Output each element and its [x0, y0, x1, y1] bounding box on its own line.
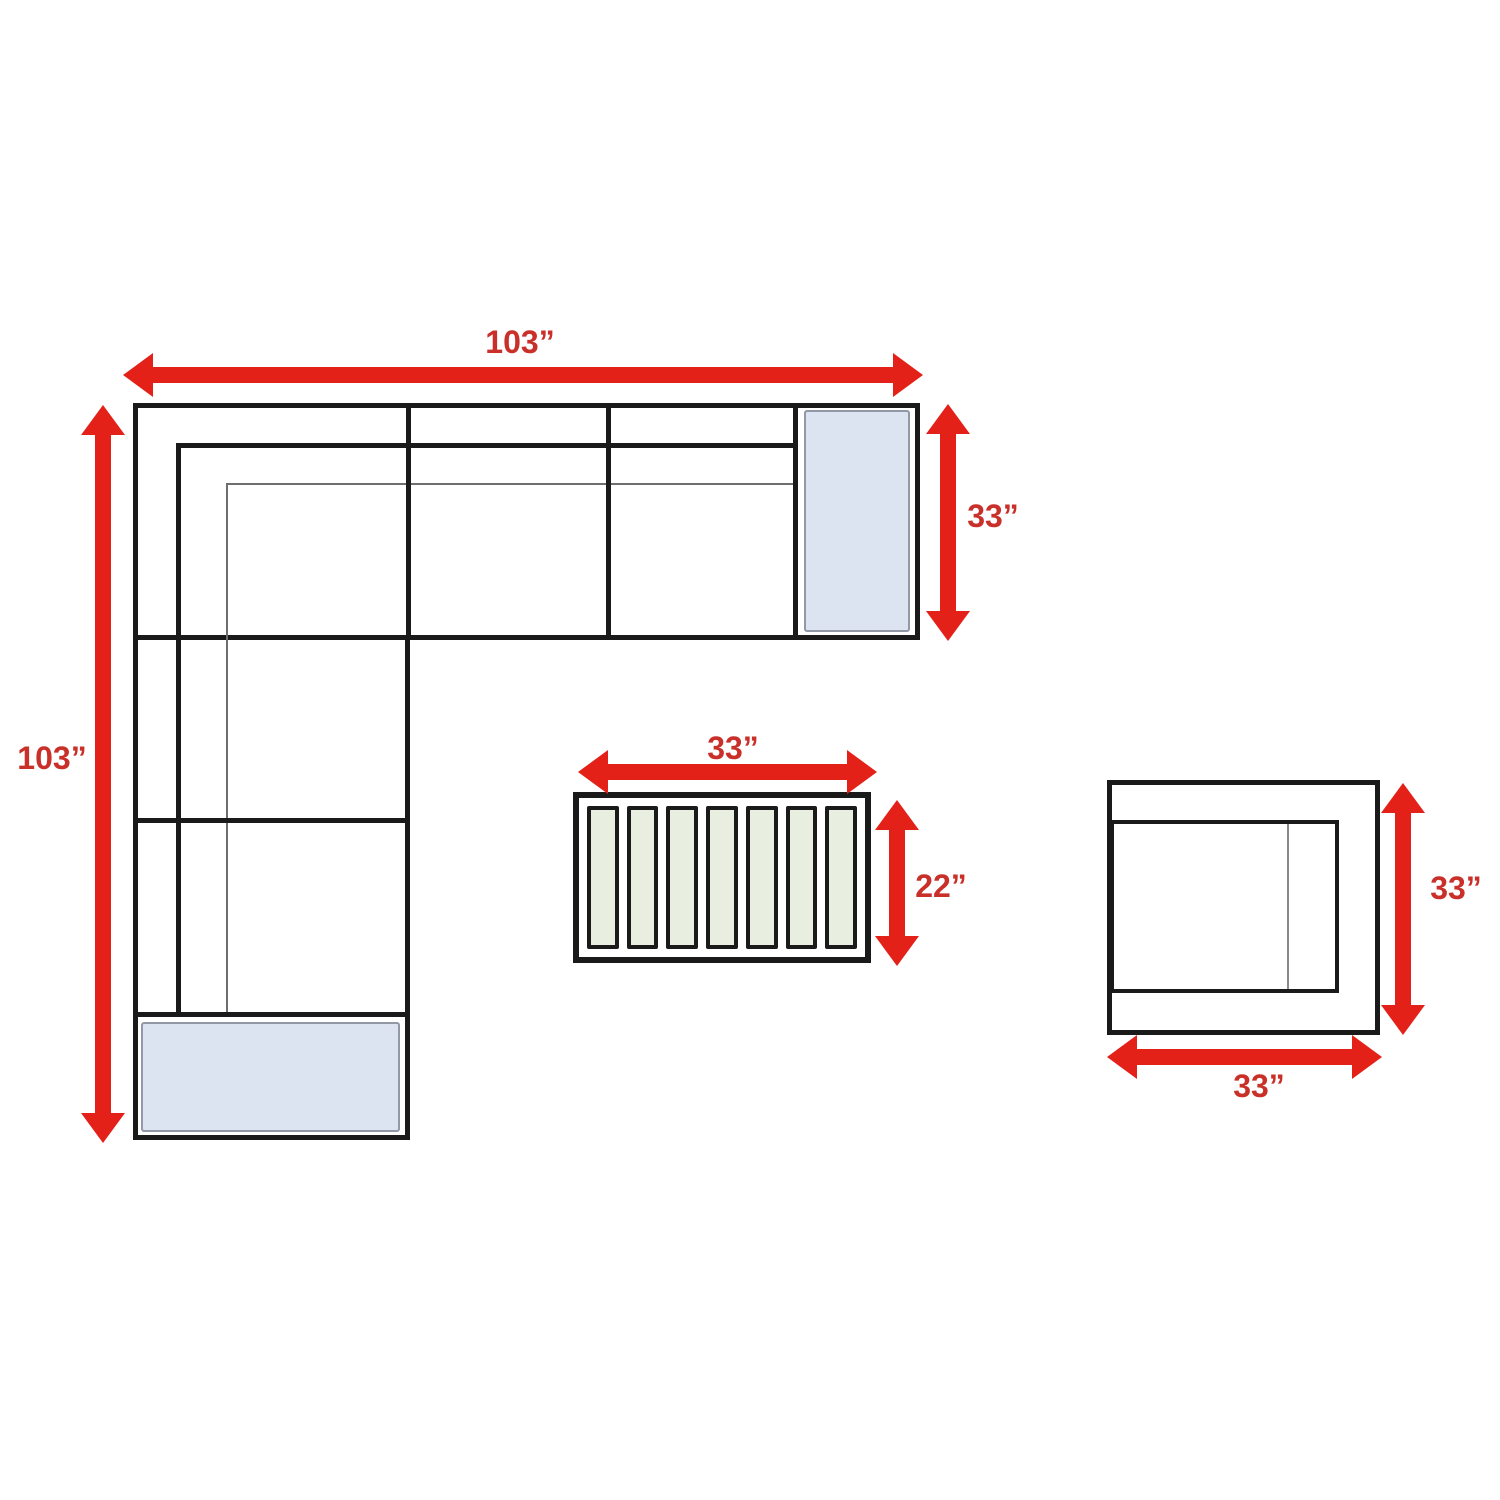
- chair-width-arrow: [1137, 1049, 1352, 1065]
- table-width-label: 33”: [707, 732, 759, 764]
- chair-depth-arrow: [1395, 813, 1411, 1005]
- table-slat: [627, 806, 659, 949]
- sofa-chaise-divider: [793, 403, 798, 640]
- chair-seat-outline: [1110, 820, 1339, 993]
- table-slat: [587, 806, 619, 949]
- chair-width-label: 33”: [1233, 1070, 1285, 1102]
- sofa-chaise-depth-label: 33”: [967, 500, 1019, 532]
- table-width-arrow: [608, 764, 847, 780]
- sofa-backrest-line-horizontal: [176, 443, 797, 448]
- table-depth-label: 22”: [915, 870, 967, 902]
- table-depth-arrow: [889, 830, 905, 936]
- table-slat: [786, 806, 818, 949]
- coffee-table-outline: [573, 792, 871, 963]
- furniture-dimensions-diagram: 103” 103” 33” 33” 22” 33” 33”: [0, 0, 1500, 1500]
- table-slat: [825, 806, 857, 949]
- table-slat: [666, 806, 698, 949]
- chair-seat-cushion-line: [1287, 824, 1289, 989]
- sofa-width-label: 103”: [485, 326, 554, 358]
- sofa-top-arm-outline: [133, 403, 920, 640]
- sofa-height-label: 103”: [17, 742, 86, 774]
- table-slat: [706, 806, 738, 949]
- sofa-height-arrow: [95, 435, 111, 1113]
- sofa-width-arrow: [153, 367, 893, 383]
- sofa-back-cushion-line-horizontal: [226, 483, 797, 485]
- sofa-seat-divider-3: [133, 818, 410, 823]
- sofa-backrest-line-vertical: [176, 443, 181, 1017]
- sofa-chaise-cushion-right: [804, 410, 910, 632]
- sofa-seat-divider-2: [606, 403, 611, 640]
- table-slat: [746, 806, 778, 949]
- sofa-ottoman-divider: [133, 1012, 410, 1017]
- sofa-chaise-cushion-bottom: [141, 1022, 400, 1132]
- chair-depth-label: 33”: [1430, 872, 1482, 904]
- sofa-seat-divider-1: [406, 403, 411, 640]
- sofa-back-cushion-line-vertical: [226, 483, 228, 1017]
- sofa-chaise-depth-arrow: [940, 434, 956, 611]
